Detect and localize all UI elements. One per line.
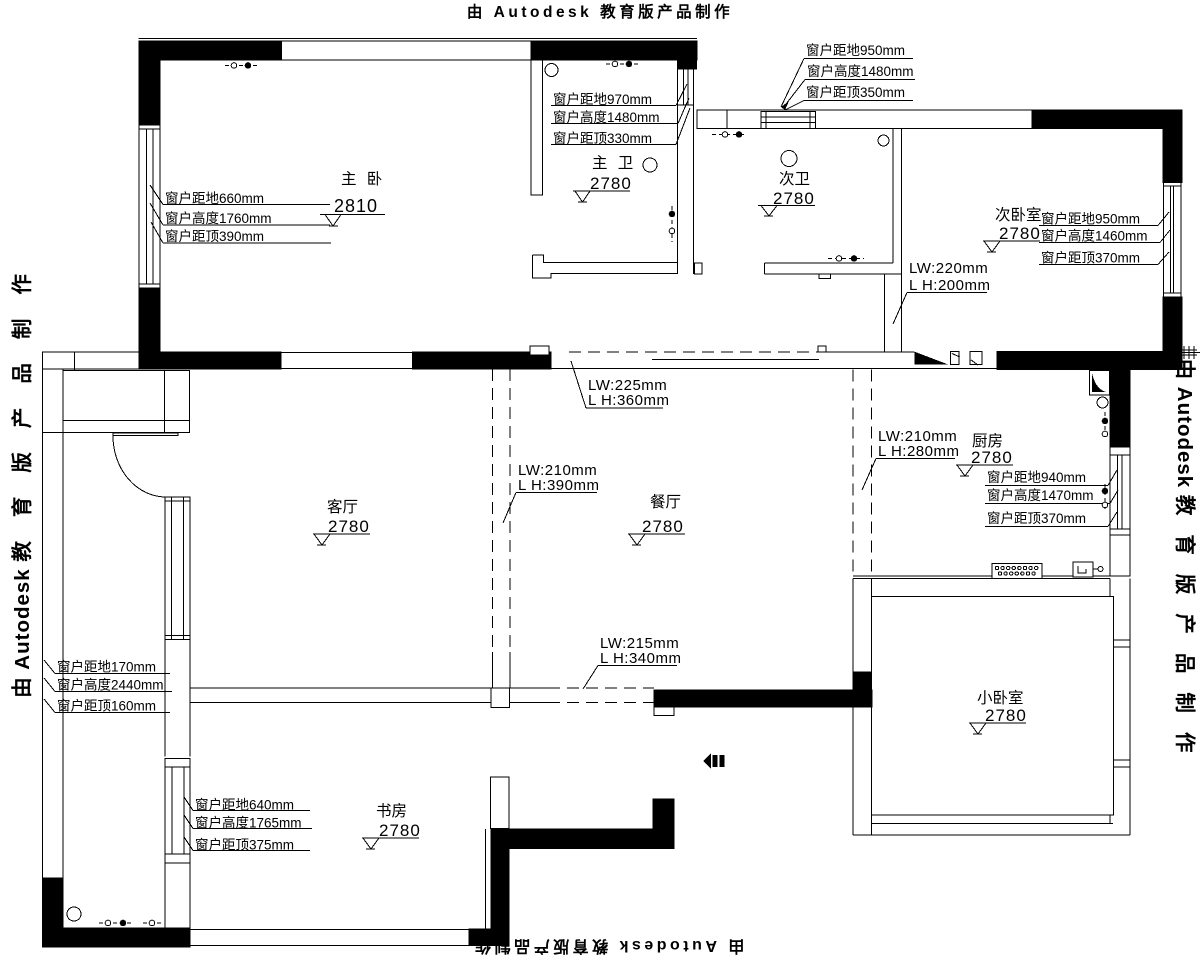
svg-text:2780: 2780 <box>328 517 370 536</box>
svg-text:L H:280mm: L H:280mm <box>878 443 959 460</box>
svg-text:小卧室: 小卧室 <box>977 689 1024 707</box>
svg-text:次卫: 次卫 <box>779 170 810 188</box>
svg-text:窗户距顶350mm: 窗户距顶350mm <box>806 84 905 100</box>
svg-text:2780: 2780 <box>642 517 684 536</box>
svg-text:L H:340mm: L H:340mm <box>600 650 681 667</box>
svg-text:书房: 书房 <box>376 802 407 820</box>
svg-text:L H:360mm: L H:360mm <box>588 392 669 409</box>
svg-text:L H:390mm: L H:390mm <box>518 477 599 494</box>
svg-text:主 卫: 主 卫 <box>592 154 636 172</box>
svg-text:窗户高度1480mm: 窗户高度1480mm <box>553 109 660 125</box>
svg-text:由 Autodesk 教育版产品制作: 由 Autodesk 教育版产品制作 <box>1173 359 1197 772</box>
svg-text:窗户高度1480mm: 窗户高度1480mm <box>807 63 914 79</box>
svg-text:窗户距顶370mm: 窗户距顶370mm <box>1041 250 1140 266</box>
svg-text:2810: 2810 <box>334 196 378 216</box>
svg-text:由 Autodesk 教育版产品制作: 由 Autodesk 教育版产品制作 <box>472 937 745 956</box>
svg-text:窗户距地950mm: 窗户距地950mm <box>806 42 905 58</box>
svg-text:餐厅: 餐厅 <box>650 493 681 511</box>
svg-text:窗户距地970mm: 窗户距地970mm <box>553 91 652 107</box>
svg-text:2780: 2780 <box>590 174 632 193</box>
svg-text:窗户距地170mm: 窗户距地170mm <box>57 659 156 675</box>
svg-text:L H:200mm: L H:200mm <box>909 277 990 294</box>
svg-text:次卧室: 次卧室 <box>995 206 1042 224</box>
svg-text:窗户距地940mm: 窗户距地940mm <box>987 469 1086 485</box>
svg-text:窗户高度1460mm: 窗户高度1460mm <box>1041 228 1148 244</box>
svg-text:窗户距顶330mm: 窗户距顶330mm <box>553 130 652 146</box>
svg-text:窗户高度1760mm: 窗户高度1760mm <box>165 210 272 226</box>
svg-text:主 卧: 主 卧 <box>341 170 385 188</box>
svg-text:窗户距顶160mm: 窗户距顶160mm <box>57 698 156 714</box>
svg-text:窗户高度1470mm: 窗户高度1470mm <box>987 487 1094 503</box>
svg-text:2780: 2780 <box>971 448 1013 467</box>
svg-text:由 Autodesk 教育版产品制作: 由 Autodesk 教育版产品制作 <box>10 250 34 698</box>
svg-text:窗户距顶370mm: 窗户距顶370mm <box>987 510 1086 526</box>
svg-text:LW:220mm: LW:220mm <box>909 260 988 277</box>
svg-text:窗户距顶390mm: 窗户距顶390mm <box>165 228 264 244</box>
svg-text:客厅: 客厅 <box>327 498 358 516</box>
svg-text:窗户距地660mm: 窗户距地660mm <box>165 190 264 206</box>
svg-text:2780: 2780 <box>999 224 1041 243</box>
svg-text:2780: 2780 <box>985 706 1027 725</box>
svg-text:窗户高度2440mm: 窗户高度2440mm <box>57 677 164 693</box>
svg-text:窗户距地950mm: 窗户距地950mm <box>1041 211 1140 227</box>
svg-text:2780: 2780 <box>379 821 421 840</box>
svg-text:由 Autodesk 教育版产品制作: 由 Autodesk 教育版产品制作 <box>467 2 733 21</box>
